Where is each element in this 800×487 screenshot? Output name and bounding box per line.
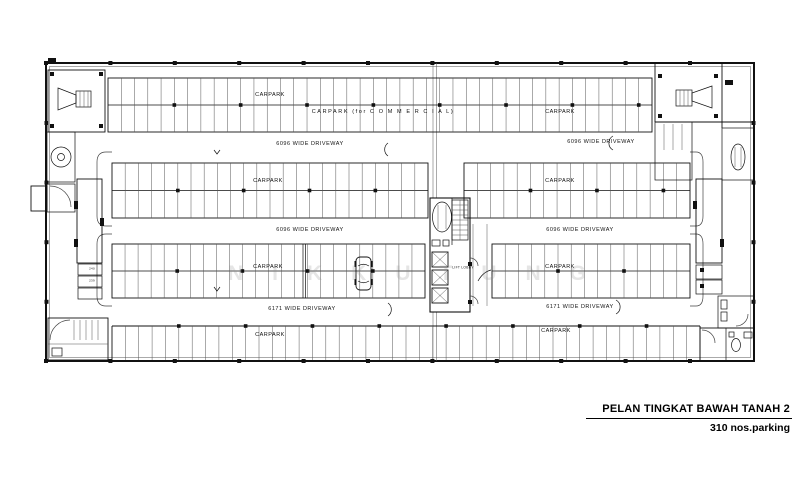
- left-store-room: [31, 184, 75, 212]
- carpark-label-mid-upper-left: CARPARK: [253, 178, 283, 184]
- carpark-label-bottom-left: CARPARK: [255, 332, 285, 338]
- title-block: PELAN TINGKAT BAWAH TANAH 2 310 nos.park…: [586, 399, 792, 434]
- lift-lobby-label: LIFT LOBBY: [452, 266, 473, 269]
- floor-plan-canvas: NIKKUTUNG: [0, 0, 800, 487]
- left-ramp: [74, 179, 104, 263]
- lift-core: [430, 198, 478, 312]
- drawing-title: PELAN TINGKAT BAWAH TANAH 2: [586, 403, 792, 419]
- carpark-label-top-right: CARPARK: [545, 109, 575, 115]
- parking-stall-rows: [108, 78, 700, 360]
- driveway-6171-label-left: 6171 WIDE DRIVEWAY: [268, 306, 335, 312]
- expansion-joint-line: [433, 63, 437, 361]
- driveway-6171-label-right: 6171 WIDE DRIVEWAY: [546, 304, 613, 310]
- bottom-right-rooms: [700, 296, 754, 361]
- carpark-label-top-left: CARPARK: [255, 92, 285, 98]
- carpark-commercial-label: CARPARK (for C O M M E R C I A L): [312, 109, 455, 115]
- parking-count: 310 nos.parking: [586, 422, 792, 434]
- carpark-label-bottom-right: CARPARK: [541, 328, 571, 334]
- carpark-label-mid-lower-right: CARPARK: [545, 264, 575, 270]
- right-service-rooms: [655, 122, 754, 294]
- right-fan-room: [655, 63, 754, 128]
- carpark-label-mid-lower-left: CARPARK: [253, 264, 283, 270]
- driveway-6096-label-mid-right: 6096 WIDE DRIVEWAY: [546, 227, 613, 233]
- stall-number-239: 239: [89, 280, 95, 283]
- carpark-label-mid-upper-right: CARPARK: [545, 178, 575, 184]
- right-ramp: [693, 179, 724, 263]
- left-mechanical-room: [47, 132, 75, 182]
- left-fan-room: [48, 58, 105, 132]
- stall-number-240: 240: [89, 268, 95, 271]
- driveway-6096-label-upper-left: 6096 WIDE DRIVEWAY: [276, 141, 343, 147]
- bottom-left-stair: [48, 318, 108, 360]
- driveway-6096-label-upper-right: 6096 WIDE DRIVEWAY: [567, 139, 634, 145]
- driveway-6096-label-mid-left: 6096 WIDE DRIVEWAY: [276, 227, 343, 233]
